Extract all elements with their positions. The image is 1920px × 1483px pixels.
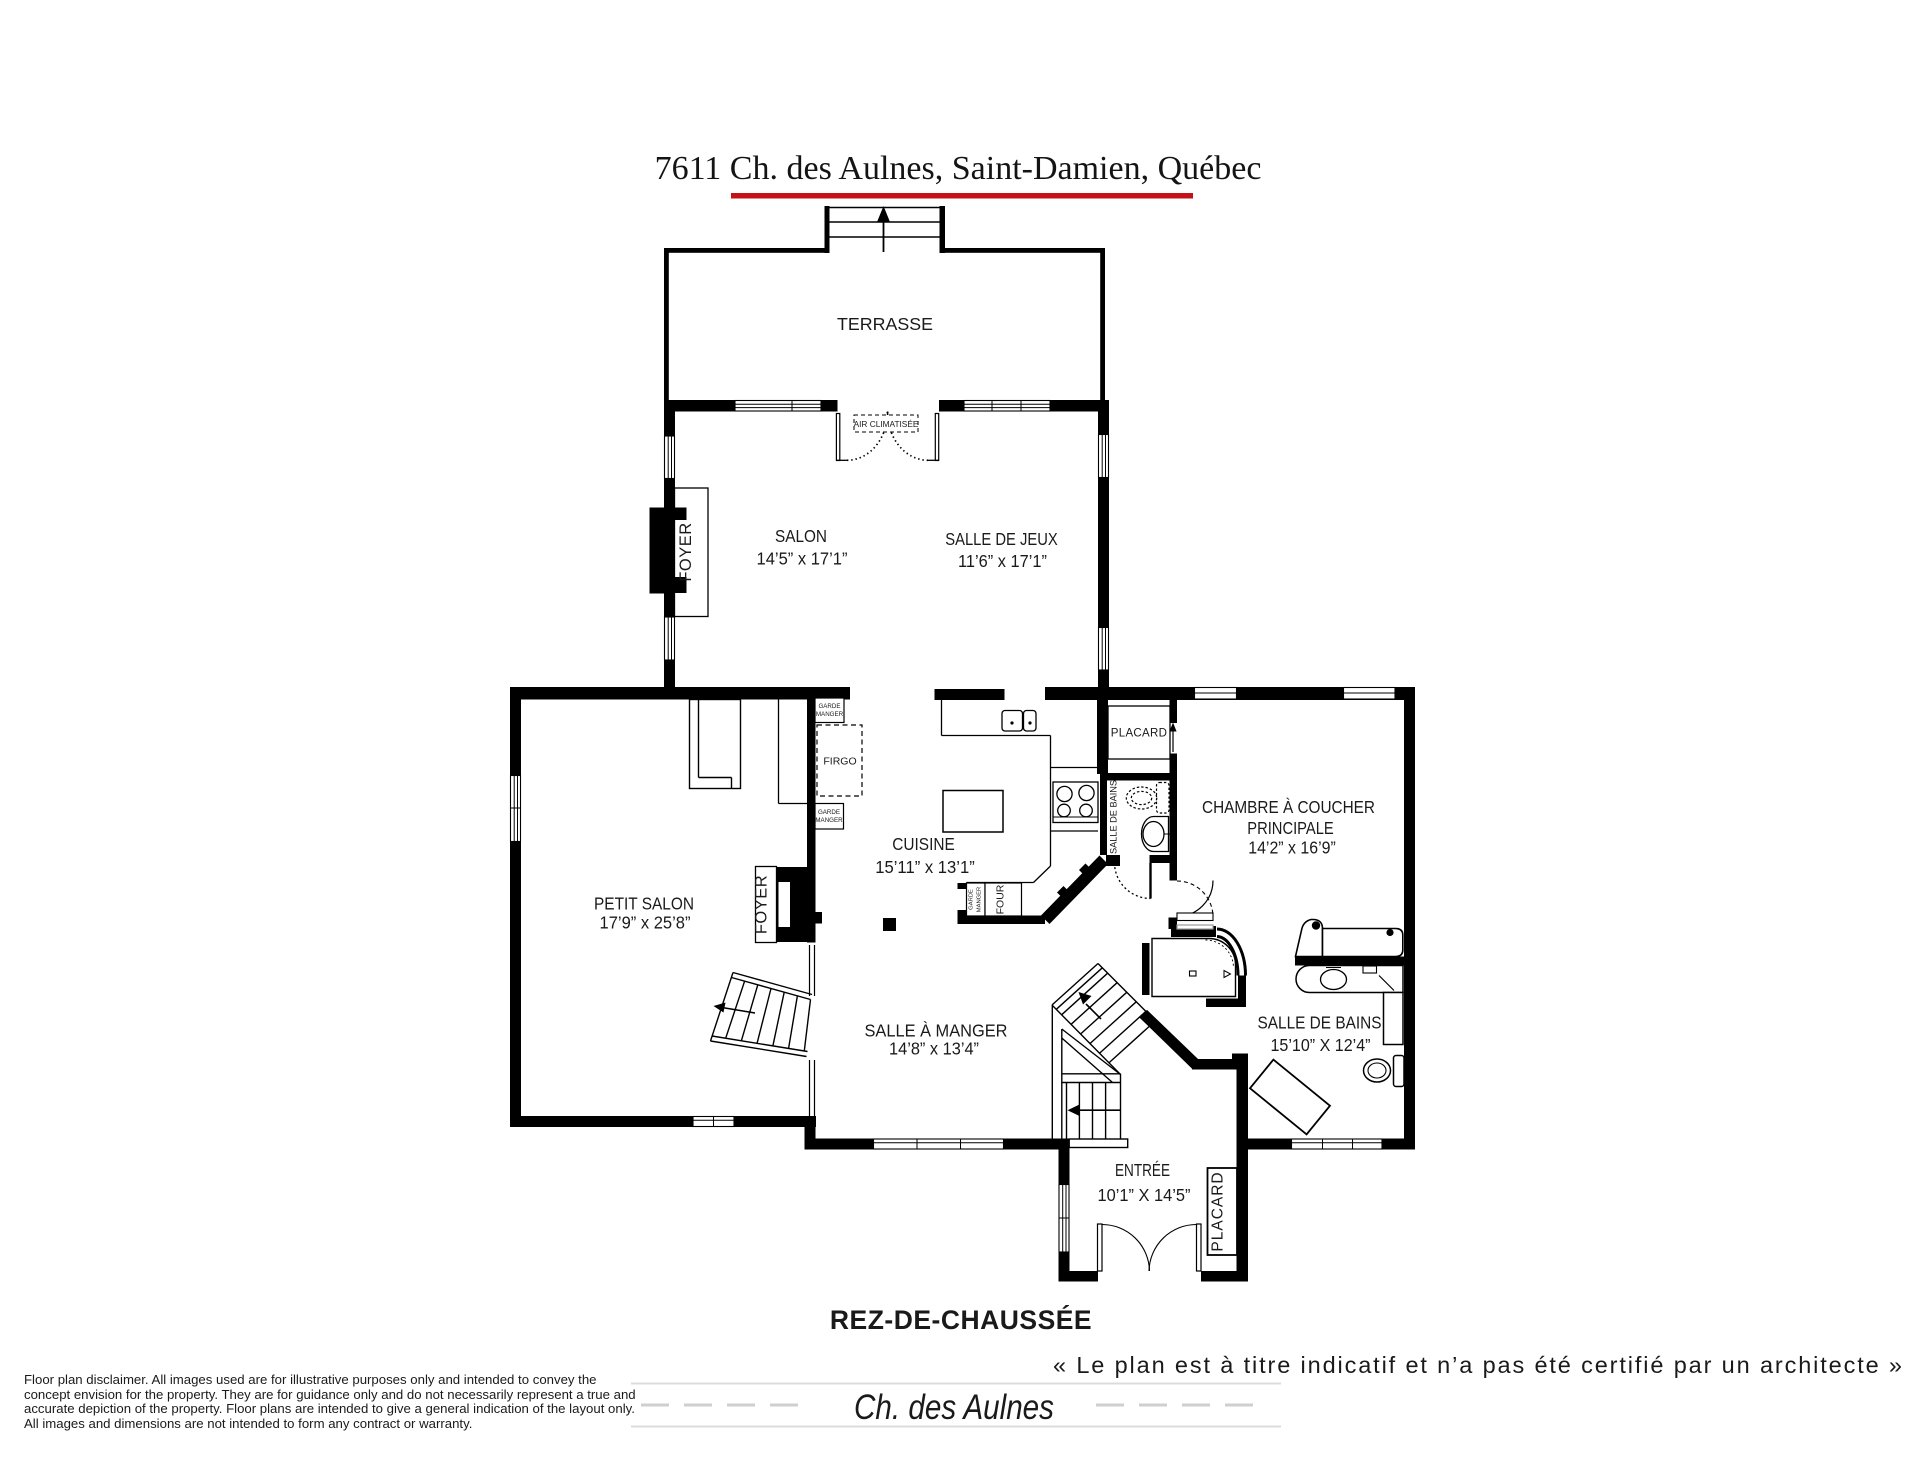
svg-text:15’11” x 13’1”: 15’11” x 13’1”: [875, 857, 975, 877]
svg-text:TERRASSE: TERRASSE: [837, 314, 933, 334]
svg-text:FOUR: FOUR: [995, 884, 1007, 914]
svg-text:SALLE DE JEUX: SALLE DE JEUX: [945, 529, 1058, 549]
svg-text:MANGER: MANGER: [815, 817, 843, 824]
svg-text:MANGER: MANGER: [977, 887, 983, 912]
svg-text:GARDE: GARDE: [818, 703, 840, 710]
svg-text:GARDE: GARDE: [969, 889, 975, 910]
svg-text:« Le plan est à titre indicati: « Le plan est à titre indicatif et n’a p…: [1053, 1352, 1903, 1378]
svg-text:PETIT SALON: PETIT SALON: [594, 894, 694, 914]
svg-text:All images and dimensions are: All images and dimensions are not intend…: [24, 1416, 472, 1431]
svg-text:Ch. des Aulnes: Ch. des Aulnes: [854, 1388, 1054, 1427]
svg-text:Floor plan disclaimer. All ima: Floor plan disclaimer. All images used a…: [24, 1372, 597, 1387]
svg-text:14’8” x 13’4”: 14’8” x 13’4”: [889, 1039, 979, 1059]
svg-text:PLACARD: PLACARD: [1210, 1171, 1227, 1251]
svg-text:REZ-DE-CHAUSSÉE: REZ-DE-CHAUSSÉE: [830, 1305, 1092, 1335]
svg-text:14’2” x 16’9”: 14’2” x 16’9”: [1248, 838, 1336, 858]
svg-text:SALLE DE BAINS: SALLE DE BAINS: [1109, 780, 1119, 854]
svg-text:7611 Ch. des Aulnes, Saint-Dam: 7611 Ch. des Aulnes, Saint-Damien, Québe…: [655, 150, 1262, 187]
svg-text:SALLE À MANGER: SALLE À MANGER: [865, 1021, 1008, 1041]
svg-text:ENTRÉE: ENTRÉE: [1115, 1160, 1170, 1180]
svg-text:PRINCIPALE: PRINCIPALE: [1247, 818, 1334, 838]
svg-text:CHAMBRE À COUCHER: CHAMBRE À COUCHER: [1202, 797, 1375, 817]
svg-text:10’1” X 14’5”: 10’1” X 14’5”: [1098, 1185, 1191, 1205]
svg-text:MANGER: MANGER: [816, 711, 844, 718]
svg-text:15’10” X 12’4”: 15’10” X 12’4”: [1271, 1035, 1371, 1055]
svg-text:GARDE: GARDE: [818, 809, 840, 816]
svg-text:AIR CLIMATISÉE: AIR CLIMATISÉE: [854, 419, 919, 429]
svg-text:14’5” x 17’1”: 14’5” x 17’1”: [757, 549, 848, 569]
svg-text:SALON: SALON: [775, 526, 827, 546]
svg-text:CUISINE: CUISINE: [892, 834, 955, 854]
svg-text:accurate depiction of the prop: accurate depiction of the property. Floo…: [24, 1401, 635, 1416]
svg-text:FOYER: FOYER: [677, 522, 695, 581]
svg-text:11’6” x 17’1”: 11’6” x 17’1”: [958, 551, 1047, 571]
svg-text:FOYER: FOYER: [753, 875, 771, 934]
svg-text:17’9” x 25’8”: 17’9” x 25’8”: [600, 913, 691, 933]
svg-text:concept envision for the prope: concept envision for the property. They …: [24, 1387, 636, 1402]
svg-text:PLACARD: PLACARD: [1111, 728, 1167, 740]
svg-text:FIRGO: FIRGO: [823, 756, 856, 768]
svg-text:SALLE DE BAINS: SALLE DE BAINS: [1258, 1013, 1382, 1033]
